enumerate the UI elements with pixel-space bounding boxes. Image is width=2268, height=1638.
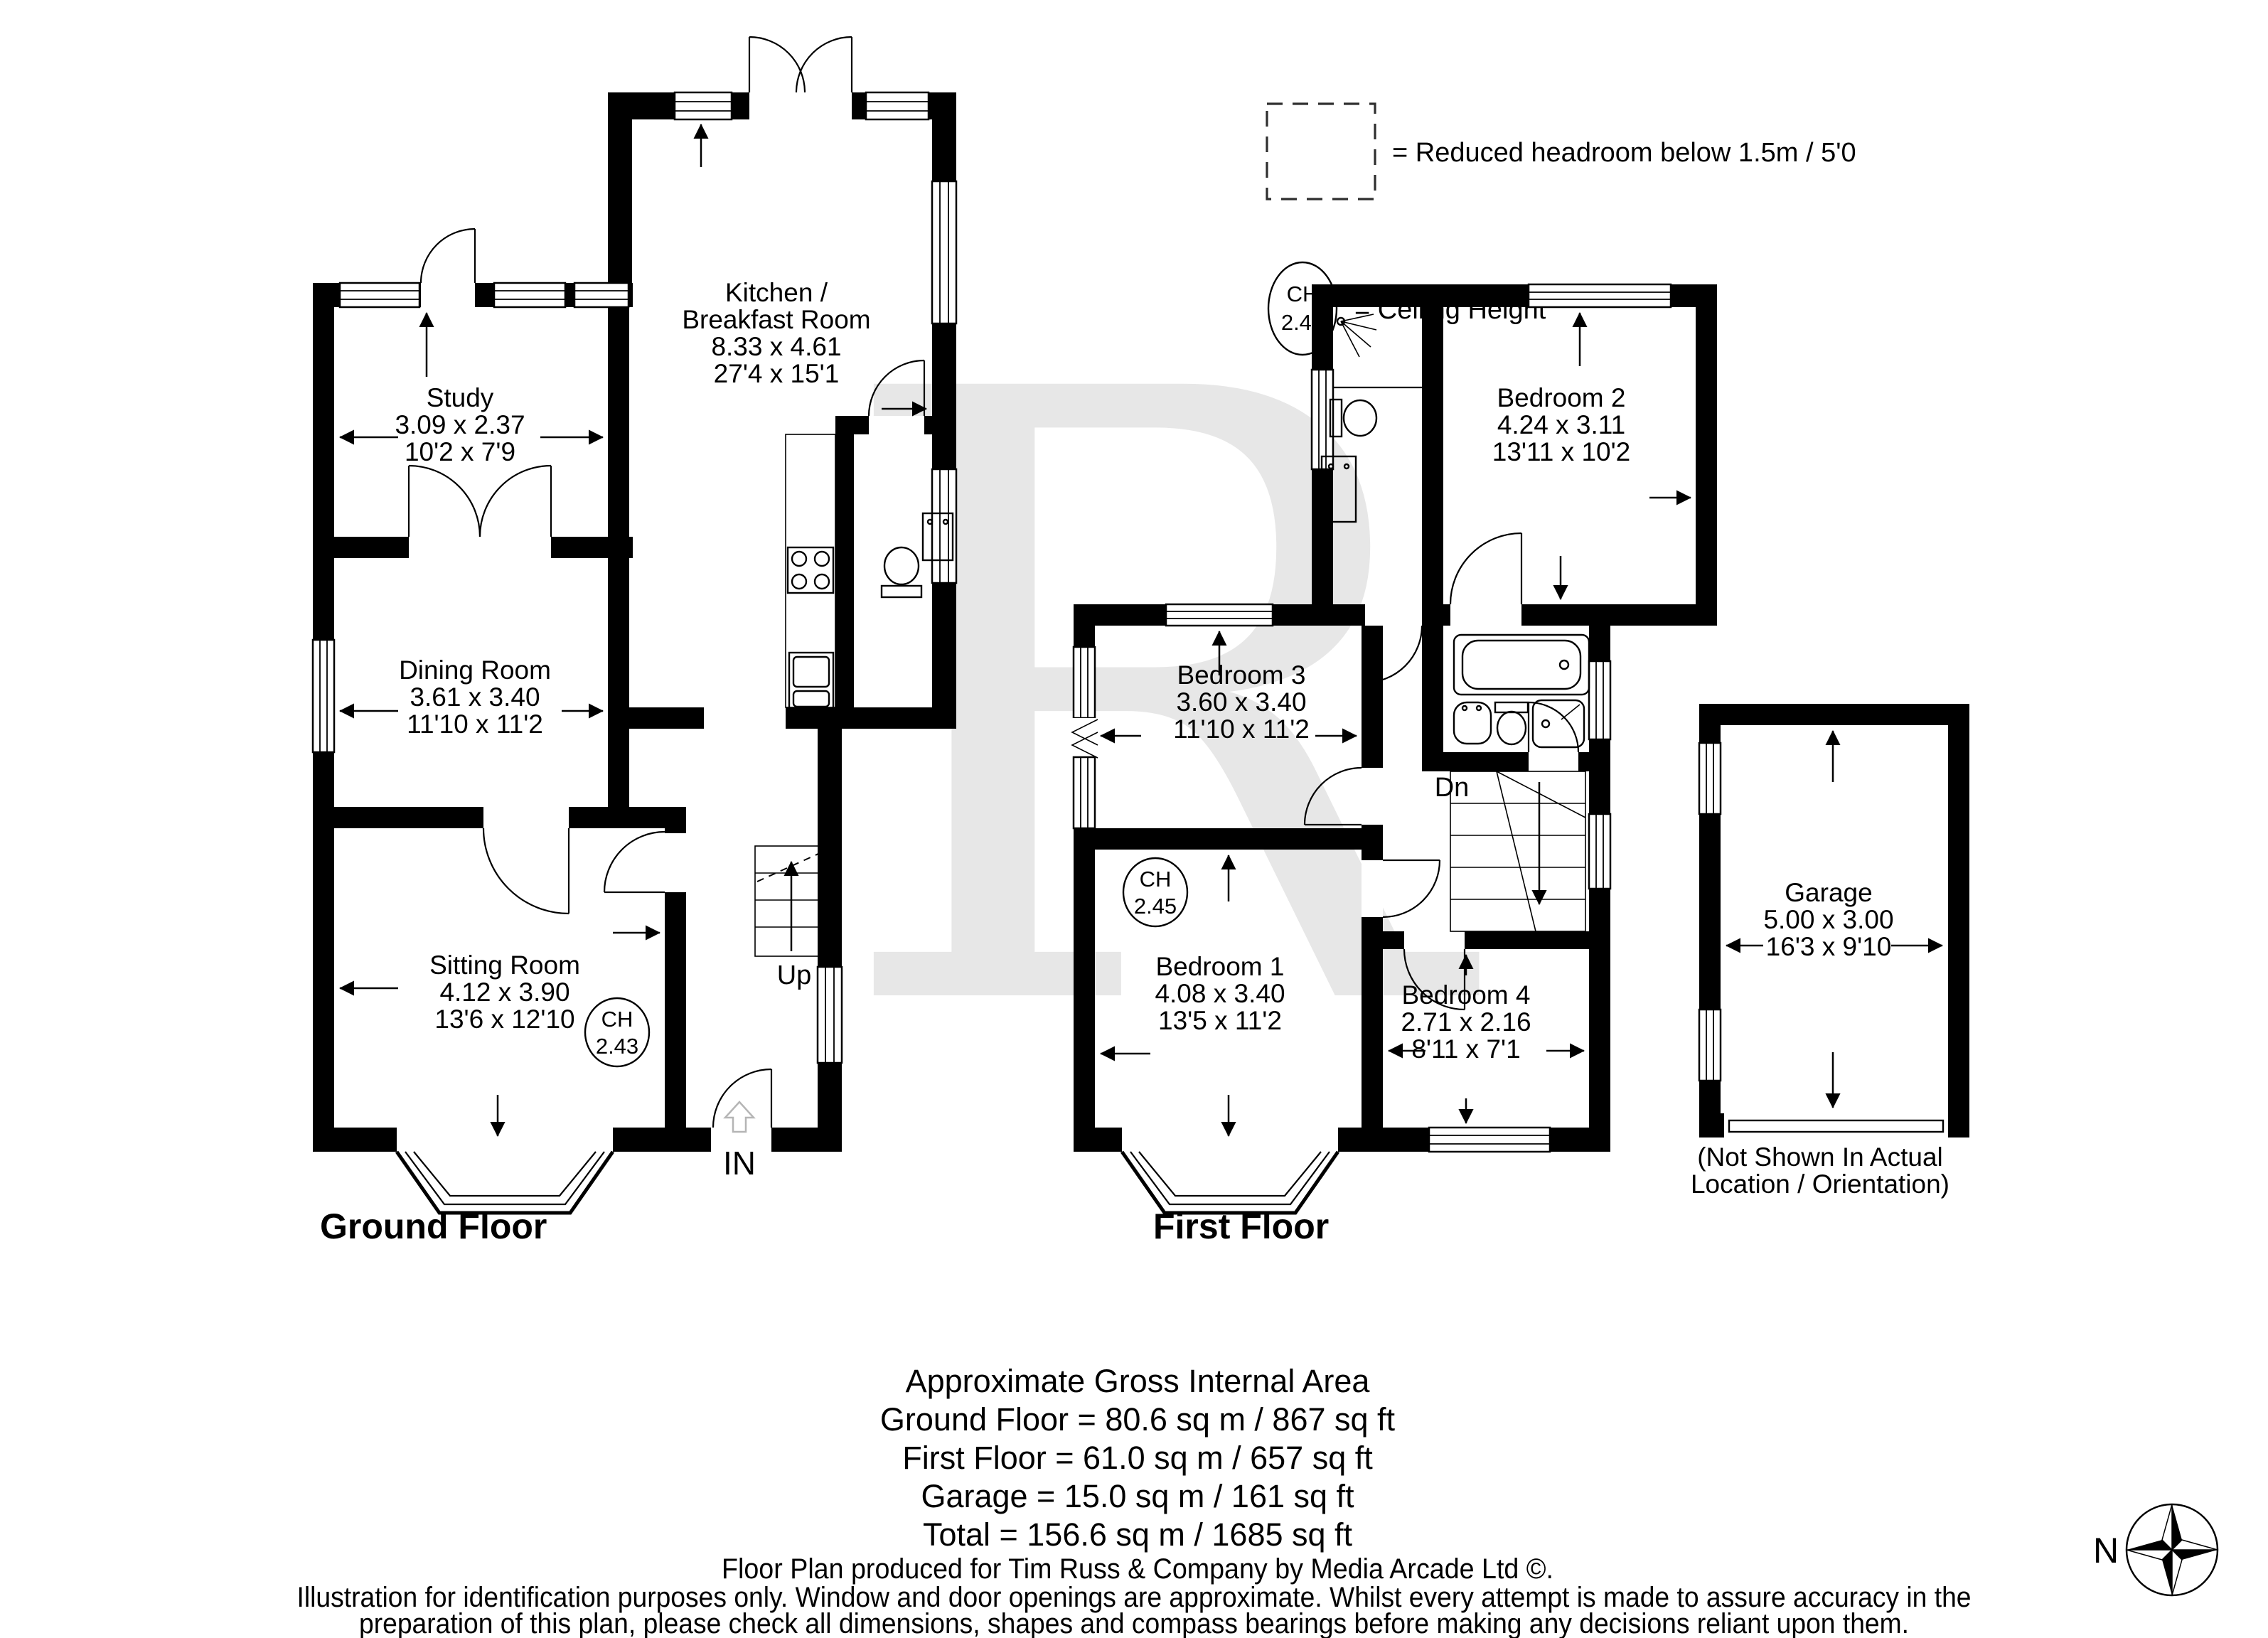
window [1074, 757, 1095, 828]
bedroom2-label: Bedroom 2 [1497, 383, 1626, 412]
bedroom1-ch-value: 2.45 [1134, 894, 1177, 919]
area-total: Total = 156.6 sq m / 1685 sq ft [923, 1516, 1353, 1553]
kitchen-metric: 8.33 x 4.61 [711, 332, 841, 361]
double-door [749, 37, 852, 92]
door [604, 832, 665, 892]
entrance-label: IN [723, 1145, 756, 1182]
wall-break-icon [1071, 718, 1098, 758]
garage-metric: 5.00 x 3.00 [1763, 905, 1893, 934]
garage-note-line1: (Not Shown In Actual [1697, 1142, 1943, 1172]
floorplan-page: R = Reduced headroom below 1.5m / 5'0 CH… [0, 0, 2268, 1638]
window [818, 967, 842, 1063]
kitchen-label-line1: Kitchen / [725, 278, 828, 307]
sink-icon [789, 653, 833, 710]
window [932, 181, 956, 323]
room-labels: Study 3.09 x 2.37 10'2 x 7'9 Kitchen / B… [395, 278, 870, 1066]
bedroom3-imperial: 11'10 x 11'2 [1173, 714, 1310, 744]
window [1589, 661, 1610, 739]
bay-window [1122, 1152, 1338, 1213]
bedroom4-label: Bedroom 4 [1402, 980, 1531, 1010]
toilet-icon [1495, 702, 1528, 744]
watermark: R [828, 218, 1483, 1194]
area-garage: Garage = 15.0 sq m / 161 sq ft [921, 1478, 1354, 1514]
study-metric: 3.09 x 2.37 [395, 410, 525, 439]
door [421, 229, 475, 283]
window [1699, 743, 1721, 814]
sitting-ch-abbr: CH [601, 1007, 633, 1032]
stairs-icon [1450, 771, 1585, 931]
kitchen-imperial: 27'4 x 15'1 [714, 359, 840, 388]
bathtub-icon [1454, 635, 1589, 695]
window [340, 283, 419, 307]
double-door [409, 466, 551, 537]
bay-window [397, 1152, 613, 1213]
front-door [713, 1069, 771, 1128]
first-floor-title: First Floor [1153, 1206, 1329, 1246]
ceiling-height-badge: CH 2.43 [585, 998, 649, 1066]
sitting-ch-value: 2.43 [596, 1034, 638, 1059]
study-label: Study [427, 383, 494, 412]
garage-label: Garage [1785, 878, 1872, 907]
stairs-up-label: Up [777, 960, 812, 990]
produced-by: Floor Plan produced for Tim Russ & Compa… [722, 1553, 1553, 1585]
hob-icon [788, 547, 833, 593]
bedroom2-imperial: 13'11 x 10'2 [1492, 437, 1631, 466]
legend-reduced-headroom-label: = Reduced headroom below 1.5m / 5'0 [1392, 138, 1856, 168]
area-title: Approximate Gross Internal Area [906, 1363, 1371, 1399]
garage-imperial: 16'3 x 9'10 [1766, 932, 1892, 961]
window [675, 92, 732, 119]
reduced-headroom-icon [1267, 104, 1375, 199]
dining-label: Dining Room [399, 655, 551, 685]
stairs-down-label: Dn [1435, 773, 1470, 803]
bedroom1-imperial: 13'5 x 11'2 [1158, 1006, 1282, 1035]
window [1529, 284, 1671, 307]
garage-door-icon [1724, 1113, 1948, 1137]
footer: Approximate Gross Internal Area Ground F… [297, 1363, 1972, 1638]
window [1166, 604, 1273, 626]
bedroom4-metric: 2.71 x 2.16 [1401, 1007, 1531, 1037]
sitting-label: Sitting Room [429, 951, 580, 980]
bedroom3-label: Bedroom 3 [1177, 660, 1306, 690]
window [866, 92, 929, 119]
bedroom1-label: Bedroom 1 [1156, 952, 1285, 981]
window [494, 283, 565, 307]
north-label: N [2093, 1531, 2119, 1570]
study-imperial: 10'2 x 7'9 [405, 437, 515, 466]
bedroom3-metric: 3.60 x 3.40 [1176, 687, 1306, 717]
bedroom1-ch-abbr: CH [1140, 867, 1172, 892]
window [1589, 814, 1610, 889]
window [1074, 647, 1095, 718]
dining-metric: 3.61 x 3.40 [410, 682, 540, 712]
basin-icon [1454, 702, 1491, 744]
window [1429, 1128, 1550, 1152]
room-labels: Garage 5.00 x 3.00 16'3 x 9'10 (Not Show… [1691, 878, 1949, 1199]
sitting-imperial: 13'6 x 12'10 [434, 1005, 574, 1034]
kitchen-label-line2: Breakfast Room [682, 305, 870, 334]
area-ground: Ground Floor = 80.6 sq m / 867 sq ft [880, 1401, 1396, 1438]
bedroom2-metric: 4.24 x 3.11 [1497, 410, 1625, 439]
area-first: First Floor = 61.0 sq m / 657 sq ft [902, 1440, 1373, 1476]
dining-imperial: 11'10 x 11'2 [407, 710, 543, 739]
window [1699, 1010, 1721, 1081]
disclaimer-line2: preparation of this plan, please check a… [359, 1608, 1909, 1638]
compass-icon: N [2093, 1504, 2218, 1595]
bedroom4-imperial: 8'11 x 7'1 [1411, 1034, 1520, 1064]
window [574, 283, 628, 307]
bedroom1-metric: 4.08 x 3.40 [1155, 979, 1285, 1008]
door [1450, 533, 1521, 604]
door [483, 828, 569, 914]
bathroom-fixtures [1454, 635, 1589, 747]
window [313, 640, 334, 752]
garage-note-line2: Location / Orientation) [1691, 1169, 1949, 1199]
garage-plan: Garage 5.00 x 3.00 16'3 x 9'10 (Not Show… [1691, 704, 1969, 1199]
stairs-icon [755, 846, 828, 956]
watermark-letter: R [828, 218, 1483, 1194]
ground-floor-title: Ground Floor [320, 1206, 547, 1246]
floorplan-drawing: R = Reduced headroom below 1.5m / 5'0 CH… [0, 0, 2268, 1638]
sitting-metric: 4.12 x 3.90 [439, 978, 569, 1007]
